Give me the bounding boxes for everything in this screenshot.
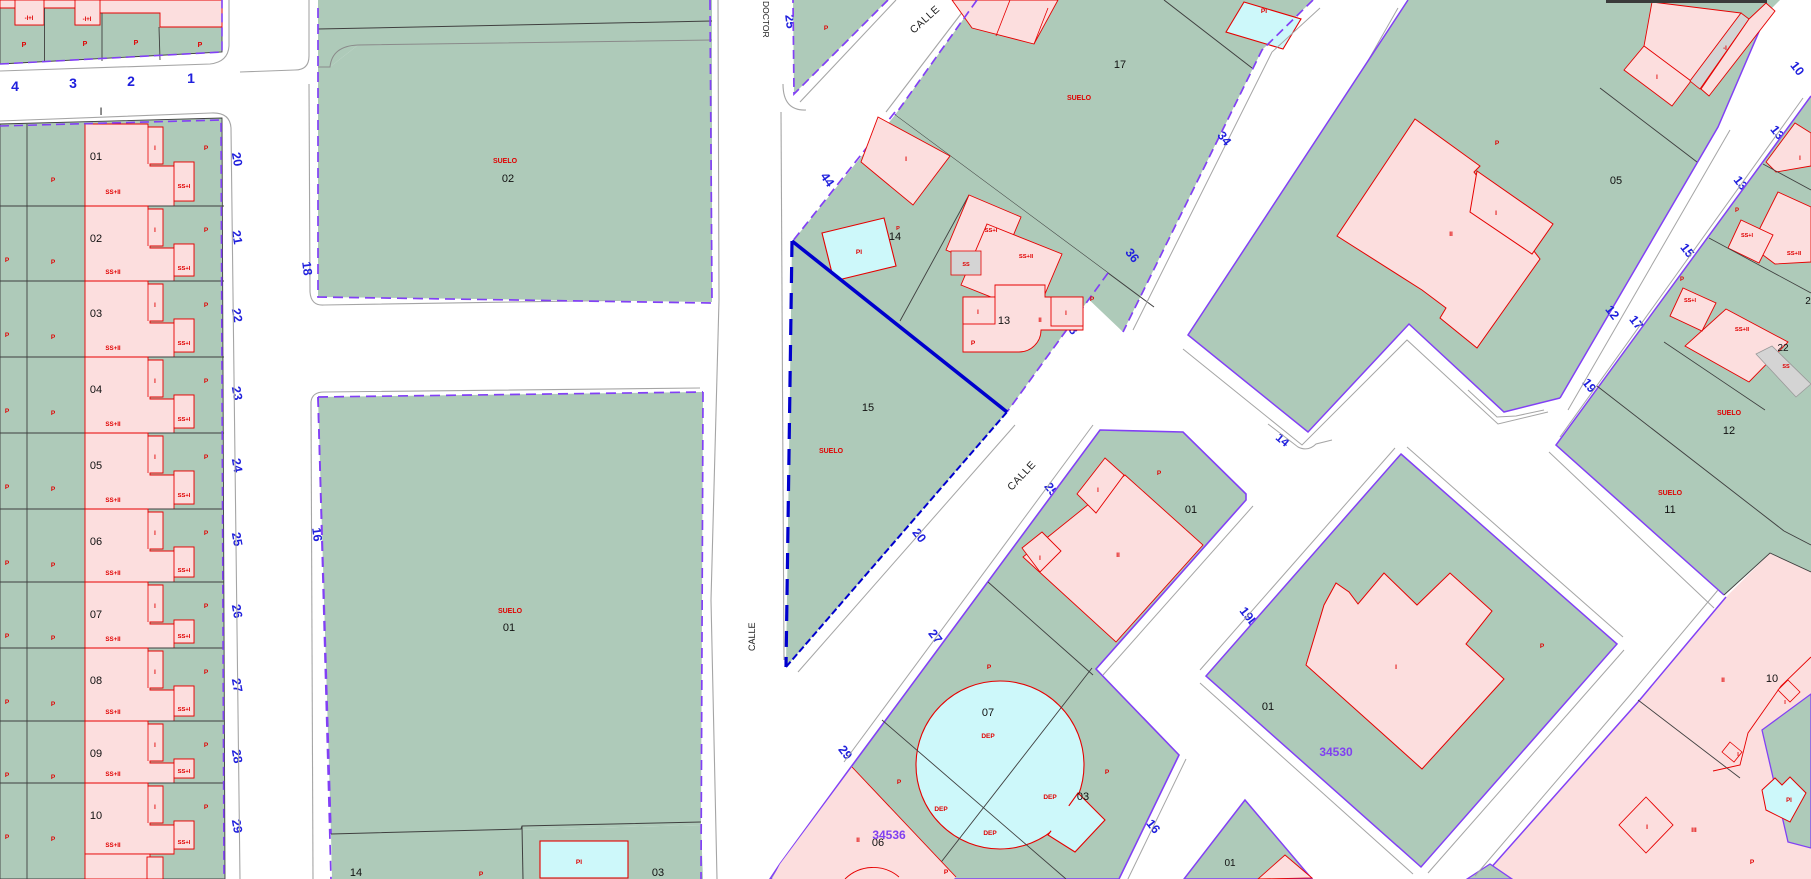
svg-text:10: 10 — [90, 810, 102, 822]
svg-text:P: P — [22, 42, 27, 49]
svg-text:P: P — [1105, 769, 1110, 776]
svg-text:SS+II: SS+II — [105, 709, 121, 716]
svg-text:SUELO: SUELO — [1717, 410, 1742, 417]
svg-text:03: 03 — [1077, 791, 1089, 803]
svg-text:PI: PI — [576, 859, 582, 866]
svg-text:1: 1 — [187, 70, 195, 86]
svg-text:01: 01 — [1185, 504, 1197, 516]
svg-text:13: 13 — [998, 315, 1010, 327]
svg-text:34530: 34530 — [1319, 745, 1353, 759]
svg-text:09: 09 — [90, 748, 102, 760]
svg-text:SS+I: SS+I — [178, 266, 191, 272]
svg-text:P: P — [5, 484, 10, 491]
svg-text:22: 22 — [1777, 343, 1789, 354]
svg-text:02: 02 — [90, 233, 102, 245]
svg-text:SS+II: SS+II — [105, 771, 121, 778]
svg-text:P: P — [1090, 296, 1095, 303]
svg-text:SS+II: SS+II — [1735, 327, 1750, 333]
svg-text:06: 06 — [90, 536, 102, 548]
svg-text:SS+I: SS+I — [1741, 233, 1754, 239]
svg-text:P: P — [897, 779, 902, 786]
svg-text:34536: 34536 — [872, 828, 906, 842]
svg-text:2: 2 — [1805, 296, 1811, 307]
svg-text:P: P — [51, 410, 56, 417]
svg-text:P: P — [824, 25, 829, 32]
svg-text:CALLE: CALLE — [747, 622, 757, 651]
svg-text:P: P — [1157, 470, 1162, 477]
svg-text:22: 22 — [229, 307, 245, 323]
svg-text:P: P — [204, 454, 209, 461]
svg-text:II: II — [1038, 318, 1042, 324]
svg-text:P: P — [5, 332, 10, 339]
svg-text:03: 03 — [652, 867, 664, 879]
svg-text:P: P — [204, 530, 209, 537]
svg-text:P: P — [987, 664, 992, 671]
svg-text:17: 17 — [1114, 59, 1126, 71]
svg-text:02: 02 — [502, 173, 514, 185]
svg-text:I: I — [1646, 824, 1648, 831]
svg-text:P: P — [204, 742, 209, 749]
svg-text:P: P — [51, 635, 56, 642]
svg-text:SS+I: SS+I — [178, 493, 191, 499]
svg-text:P: P — [479, 871, 484, 878]
svg-text:SS+I: SS+I — [178, 417, 191, 423]
svg-text:SS+I: SS+I — [985, 228, 998, 234]
svg-text:P: P — [51, 836, 56, 843]
svg-text:SS: SS — [962, 262, 970, 268]
svg-text:-I+I: -I+I — [25, 16, 34, 22]
svg-text:3: 3 — [69, 75, 77, 91]
svg-text:SS+I: SS+I — [178, 840, 191, 846]
svg-text:05: 05 — [1610, 175, 1622, 187]
svg-text:01: 01 — [1224, 858, 1236, 869]
svg-text:-I+I: -I+I — [83, 17, 92, 23]
svg-text:25: 25 — [229, 531, 245, 547]
svg-text:12: 12 — [1723, 425, 1735, 437]
svg-text:SS: SS — [1782, 364, 1790, 370]
svg-text:P: P — [971, 340, 976, 347]
svg-text:P: P — [51, 177, 56, 184]
svg-text:P: P — [204, 804, 209, 811]
svg-text:23: 23 — [229, 385, 245, 401]
svg-text:P: P — [51, 486, 56, 493]
svg-text:01: 01 — [1262, 701, 1274, 713]
svg-text:PI: PI — [856, 249, 862, 256]
svg-text:SS+I: SS+I — [178, 184, 191, 190]
svg-text:18: 18 — [299, 261, 315, 277]
svg-text:SUELO: SUELO — [819, 448, 844, 455]
svg-text:III: III — [1691, 827, 1697, 834]
svg-text:SS+II: SS+II — [105, 269, 121, 276]
svg-text:2: 2 — [127, 73, 135, 89]
svg-text:24: 24 — [229, 457, 245, 473]
svg-text:SS+II: SS+II — [105, 842, 121, 849]
svg-text:P: P — [1735, 208, 1739, 214]
svg-text:P: P — [5, 633, 10, 640]
svg-text:27: 27 — [229, 677, 245, 693]
svg-text:P: P — [1680, 277, 1684, 283]
svg-text:08: 08 — [90, 675, 102, 687]
svg-text:SS+I: SS+I — [178, 707, 191, 713]
svg-text:29: 29 — [229, 818, 245, 834]
svg-text:SS+II: SS+II — [1787, 251, 1802, 257]
svg-text:SS+II: SS+II — [105, 345, 121, 352]
svg-text:SS+II: SS+II — [105, 421, 121, 428]
svg-text:P: P — [1750, 859, 1755, 866]
svg-text:01: 01 — [90, 151, 102, 163]
svg-text:P: P — [204, 603, 209, 610]
svg-text:P: P — [83, 41, 88, 48]
svg-text:P: P — [51, 562, 56, 569]
svg-text:P: P — [51, 259, 56, 266]
svg-text:05: 05 — [90, 460, 102, 472]
svg-text:07: 07 — [982, 707, 994, 719]
svg-text:P: P — [944, 869, 949, 876]
svg-text:I: I — [905, 156, 907, 163]
svg-text:01: 01 — [503, 622, 515, 634]
svg-text:P: P — [5, 257, 10, 264]
svg-text:07: 07 — [90, 609, 102, 621]
svg-text:P: P — [204, 302, 209, 309]
svg-text:P: P — [5, 699, 10, 706]
svg-text:SUELO: SUELO — [1067, 95, 1092, 102]
svg-text:10: 10 — [1766, 673, 1778, 685]
svg-text:I: I — [1495, 210, 1497, 217]
svg-text:SS+II: SS+II — [105, 636, 121, 643]
svg-text:SS+II: SS+II — [105, 189, 121, 196]
svg-text:14: 14 — [889, 231, 901, 243]
svg-text:II: II — [1116, 552, 1120, 559]
svg-text:P: P — [1540, 643, 1545, 650]
svg-text:4: 4 — [11, 78, 19, 94]
svg-text:14: 14 — [350, 867, 362, 879]
svg-text:SS+I: SS+I — [178, 341, 191, 347]
svg-text:P: P — [204, 378, 209, 385]
svg-text:28: 28 — [229, 748, 245, 764]
svg-text:SS+II: SS+II — [1019, 254, 1034, 260]
svg-text:11: 11 — [1664, 504, 1675, 516]
svg-text:SUELO: SUELO — [493, 158, 518, 165]
svg-text:PI: PI — [1786, 798, 1792, 804]
svg-text:SS+I: SS+I — [178, 634, 191, 640]
svg-text:SS+I: SS+I — [1684, 298, 1697, 304]
svg-text:I: I — [1395, 664, 1397, 671]
svg-text:P: P — [51, 701, 56, 708]
svg-text:P: P — [51, 334, 56, 341]
svg-text:P: P — [896, 226, 900, 232]
svg-text:P: P — [134, 40, 139, 47]
svg-text:SUELO: SUELO — [498, 608, 523, 615]
svg-text:P: P — [204, 145, 209, 152]
svg-text:04: 04 — [90, 384, 102, 396]
svg-text:-I: -I — [1723, 46, 1727, 52]
svg-text:II: II — [1449, 231, 1453, 238]
svg-text:DEP: DEP — [934, 806, 948, 813]
svg-text:P: P — [5, 834, 10, 841]
svg-text:03: 03 — [90, 308, 102, 320]
svg-text:21: 21 — [229, 229, 245, 245]
svg-text:PI: PI — [1261, 8, 1267, 15]
svg-text:P: P — [5, 560, 10, 567]
svg-text:15: 15 — [862, 402, 874, 414]
svg-text:P: P — [204, 669, 209, 676]
svg-text:II: II — [856, 837, 860, 844]
svg-text:P: P — [198, 42, 203, 49]
svg-text:DEP: DEP — [983, 830, 997, 837]
svg-text:SS+II: SS+II — [105, 497, 121, 504]
svg-text:DEP: DEP — [1043, 794, 1057, 801]
svg-text:P: P — [1495, 140, 1500, 147]
svg-text:P: P — [5, 772, 10, 779]
svg-text:SUELO: SUELO — [1658, 490, 1683, 497]
svg-text:P: P — [5, 408, 10, 415]
svg-text:P: P — [204, 227, 209, 234]
svg-text:DOCTOR: DOCTOR — [761, 1, 771, 38]
svg-text:SS+I: SS+I — [178, 568, 191, 574]
svg-text:SS+II: SS+II — [105, 570, 121, 577]
svg-text:II: II — [1721, 677, 1725, 684]
svg-text:SS+I: SS+I — [178, 769, 191, 775]
svg-text:P: P — [51, 774, 56, 781]
svg-text:I: I — [99, 106, 102, 118]
svg-text:DEP: DEP — [981, 733, 995, 740]
